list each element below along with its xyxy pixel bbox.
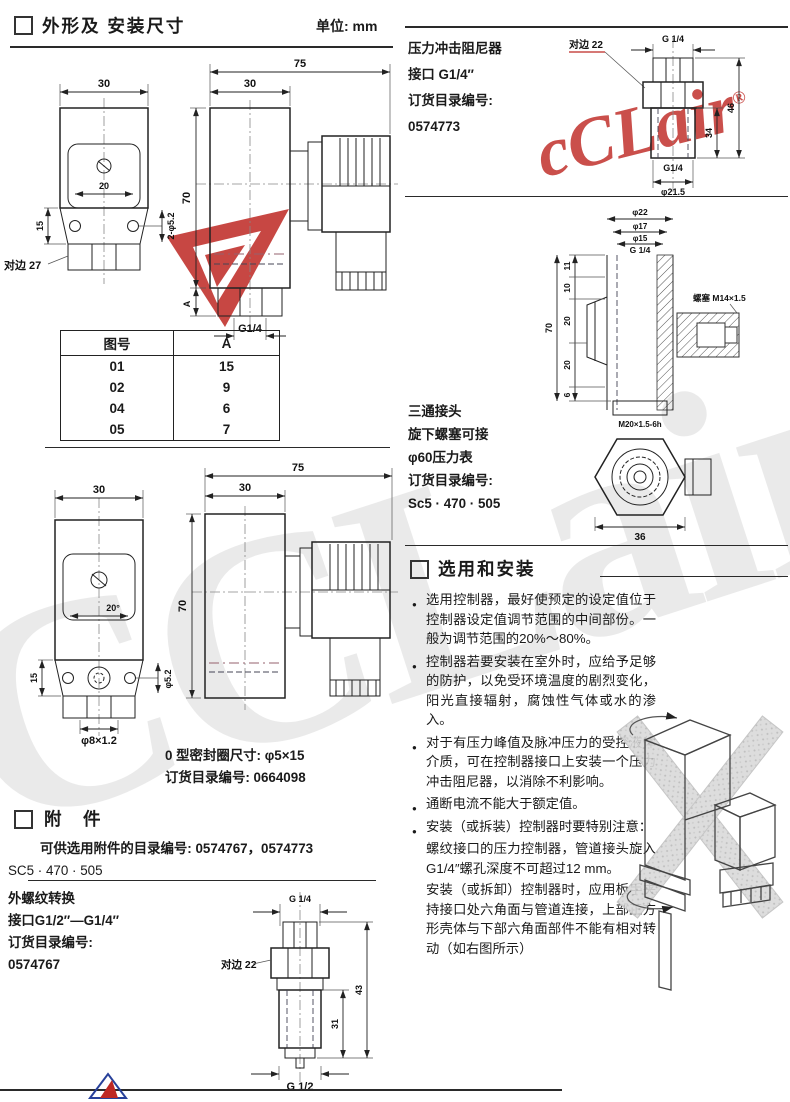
- accessories-sc5-number: SC5 · 470 · 505: [8, 860, 103, 882]
- dim-70-tee: 70: [544, 323, 554, 333]
- dim-30-side2: 30: [239, 482, 251, 494]
- separator-rule: [45, 447, 390, 448]
- damper-order-label: 订货目录编号:: [408, 88, 502, 114]
- dim-15-front2: 15: [29, 673, 39, 683]
- damper-title: 压力冲击阻尼器: [408, 36, 502, 62]
- front-view-2: 30 20° φ5.2 15 φ8×1.2: [29, 484, 173, 747]
- dim-hole-front2: φ5.2: [163, 670, 173, 689]
- bullet-icon: ●: [412, 822, 417, 842]
- tee-order-number: Sc5 · 470 · 505: [408, 492, 500, 515]
- section-checkbox-selection: [410, 560, 429, 579]
- dim-20-front1: 20: [99, 181, 109, 191]
- damper-text-block: 压力冲击阻尼器 接口 G1/4″ 订货目录编号: 0574773: [408, 36, 502, 140]
- bullet-text: 通断电流不能大于额定值。: [426, 796, 586, 811]
- section-checkbox-dimensions: [14, 16, 33, 35]
- dim-g14-top-damper: G 1/4: [662, 34, 684, 44]
- dim-A-side1: A: [182, 300, 192, 307]
- drawing-switch-front-side-1: 30 20 2-φ5.2 15 对边 27 75: [0, 56, 400, 328]
- section-title-selection: 选用和安装: [438, 556, 536, 581]
- dim-30-side1: 30: [244, 78, 256, 90]
- tee-text-block: 三通接头 旋下螺塞可接 φ60压力表 订货目录编号: Sc5 · 470 · 5…: [408, 400, 500, 515]
- drawing-thread-adapter: G 1/4 对边 22 31 43 G 1/2: [195, 882, 410, 1094]
- thread-conv-title: 外螺纹转换: [8, 888, 75, 910]
- side-view-2: 75 30 70: [177, 462, 398, 710]
- dim-holes-front1: 2-φ5.2: [166, 213, 176, 240]
- label-hex22-adapter: 对边 22: [221, 958, 257, 971]
- drawing-switch-front-side-2: 30 20° φ5.2 15 φ8×1.2 75: [0, 458, 400, 748]
- side-view-1: 75 30 70 A G1/4: [181, 58, 398, 340]
- oring-size-note: 0 型密封圈尺寸: φ5×15: [165, 745, 304, 767]
- drawing-damper: 对边 22 G 1/4 G1/4 φ21.5 34 46: [545, 32, 790, 202]
- bullet-item: ●选用控制器，最好使预定的设定值位于控制器设定值调节范围的中间部份。一般为调节范…: [412, 590, 656, 649]
- label-plug-m14: 螺塞 M14×1.5: [693, 293, 746, 303]
- dim-43-adapter: 43: [354, 985, 364, 995]
- bullet-icon: ●: [412, 657, 417, 677]
- knurl-1: [342, 272, 382, 290]
- thread-conv-ports: 接口G1/2″—G1/4″: [8, 910, 119, 932]
- label-m20-thread: M20×1.5-6h: [618, 420, 661, 429]
- cell-a: 7: [174, 419, 280, 441]
- dim-d17-tee: φ17: [633, 222, 648, 231]
- table-header-figure: 图号: [61, 331, 174, 356]
- dim-g14-tee: G 1/4: [630, 245, 651, 255]
- bottom-rule-left: [0, 1089, 562, 1091]
- tee-title: 三通接头: [408, 400, 500, 423]
- table-header-a: A: [174, 331, 280, 356]
- label-hex27: 对边 27: [4, 258, 41, 272]
- dim-11-tee: 11: [562, 261, 572, 270]
- dim-10-tee: 10: [562, 283, 572, 293]
- cell-a: 6: [174, 398, 280, 419]
- section-title-dimensions: 外形及 安装尺寸: [42, 13, 185, 38]
- cell-a: 9: [174, 377, 280, 398]
- drawing-do-not-rotate: [615, 685, 790, 995]
- cell-figure: 01: [61, 356, 174, 378]
- bullet-icon: ●: [412, 595, 417, 615]
- dim-75-side1: 75: [294, 58, 306, 70]
- dim-46-damper: 46: [726, 103, 736, 113]
- damper-order-number: 0574773: [408, 114, 502, 140]
- front-view-1: 30 20 2-φ5.2 15 对边 27: [4, 78, 176, 284]
- a-dimension-table: 图号 A 0115 029 046 057: [60, 330, 280, 441]
- tee-order-label: 订货目录编号:: [408, 469, 500, 492]
- dim-phi8-front2: φ8×1.2: [81, 735, 117, 747]
- dim-6-tee: 6: [562, 392, 572, 397]
- connector-fins-1: [322, 138, 390, 186]
- section-title-accessories: 附 件: [44, 806, 103, 831]
- dim-g12-adapter: G 1/2: [287, 1081, 314, 1093]
- dim-31-adapter: 31: [330, 1019, 340, 1029]
- dim-70-side2: 70: [177, 600, 189, 612]
- connector-fins-2: [312, 544, 390, 590]
- dim-30-front2: 30: [93, 484, 105, 496]
- knurl-2: [336, 680, 376, 696]
- damper-port: 接口 G1/4″: [408, 62, 502, 88]
- footer-logo: [88, 1072, 134, 1100]
- right-top-rule: [405, 26, 788, 28]
- cell-figure: 02: [61, 377, 174, 398]
- unit-label: 单位: mm: [316, 16, 377, 36]
- dim-75-side2: 75: [292, 462, 304, 474]
- section-checkbox-accessories: [14, 810, 33, 829]
- cell-figure: 04: [61, 398, 174, 419]
- dim-g14-adapter: G 1/4: [289, 894, 311, 904]
- tee-desc-2: φ60压力表: [408, 446, 500, 469]
- dim-20b-tee: 20: [562, 360, 572, 370]
- thread-conv-order-number: 0574767: [8, 954, 60, 976]
- table-row: 046: [61, 398, 280, 419]
- dim-g14-bottom-damper: G1/4: [663, 163, 683, 173]
- header-rule: [10, 46, 393, 48]
- tee-top-dims: φ22 φ17 φ15 G 1/4: [607, 207, 673, 255]
- cell-figure: 05: [61, 419, 174, 441]
- accessories-rule: [28, 880, 376, 881]
- tee-bottom-view: 36: [595, 439, 711, 543]
- dim-d22-tee: φ22: [632, 207, 648, 217]
- oring-order-number: 订货目录编号: 0664098: [165, 767, 306, 789]
- dim-20deg-front2: 20°: [106, 603, 120, 613]
- tee-body: 螺塞 M14×1.5 M20×1.5-6h: [587, 255, 746, 429]
- cell-a: 15: [174, 356, 280, 378]
- dim-30-front1: 30: [98, 78, 110, 90]
- thread-conv-order-label: 订货目录编号:: [8, 932, 93, 954]
- datasheet-page: CCLair cCLair® 外形及 安装尺寸 单位: mm 30 20 2-φ…: [0, 0, 790, 1102]
- accessories-catalog-numbers: 可供选用附件的目录编号: 0574767，0574773: [40, 838, 313, 860]
- tee-left-dims: 11 10 20 20 6 70: [544, 255, 611, 401]
- tee-desc-1: 旋下螺塞可接: [408, 423, 500, 446]
- bullet-icon: ●: [412, 738, 417, 758]
- bullet-text: 选用控制器，最好使预定的设定值位于控制器设定值调节范围的中间部份。一般为调节范围…: [426, 592, 656, 646]
- selection-top-rule: [405, 545, 788, 546]
- right-mid-rule: [405, 196, 788, 197]
- dim-d15-tee: φ15: [633, 234, 648, 243]
- selection-title-rule: [600, 576, 788, 577]
- dim-36-tee: 36: [634, 532, 646, 543]
- dim-34-damper: 34: [704, 128, 714, 138]
- dim-15-front1: 15: [35, 221, 45, 231]
- dim-20a-tee: 20: [562, 316, 572, 326]
- table-row: 0115: [61, 356, 280, 378]
- label-hex22-damper: 对边 22: [569, 38, 603, 51]
- table-row: 057: [61, 419, 280, 441]
- table-row: 029: [61, 377, 280, 398]
- dim-70-side1: 70: [181, 192, 193, 204]
- drawing-tee-section: φ22 φ17 φ15 G 1/4 螺塞 M14×1.5 M20×1.5-6h: [545, 205, 790, 545]
